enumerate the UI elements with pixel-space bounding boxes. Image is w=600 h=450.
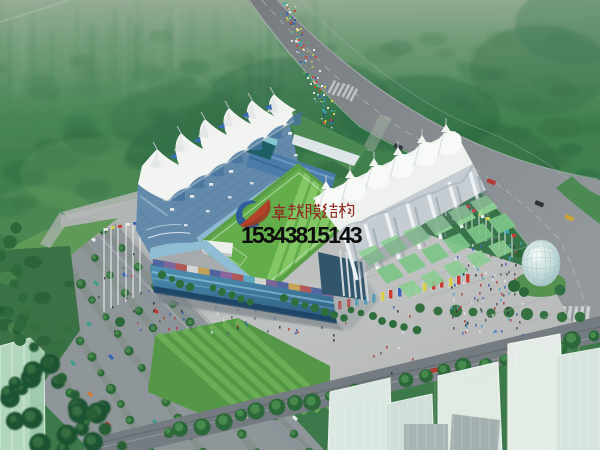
svg-text:15343815143: 15343815143	[241, 222, 362, 248]
